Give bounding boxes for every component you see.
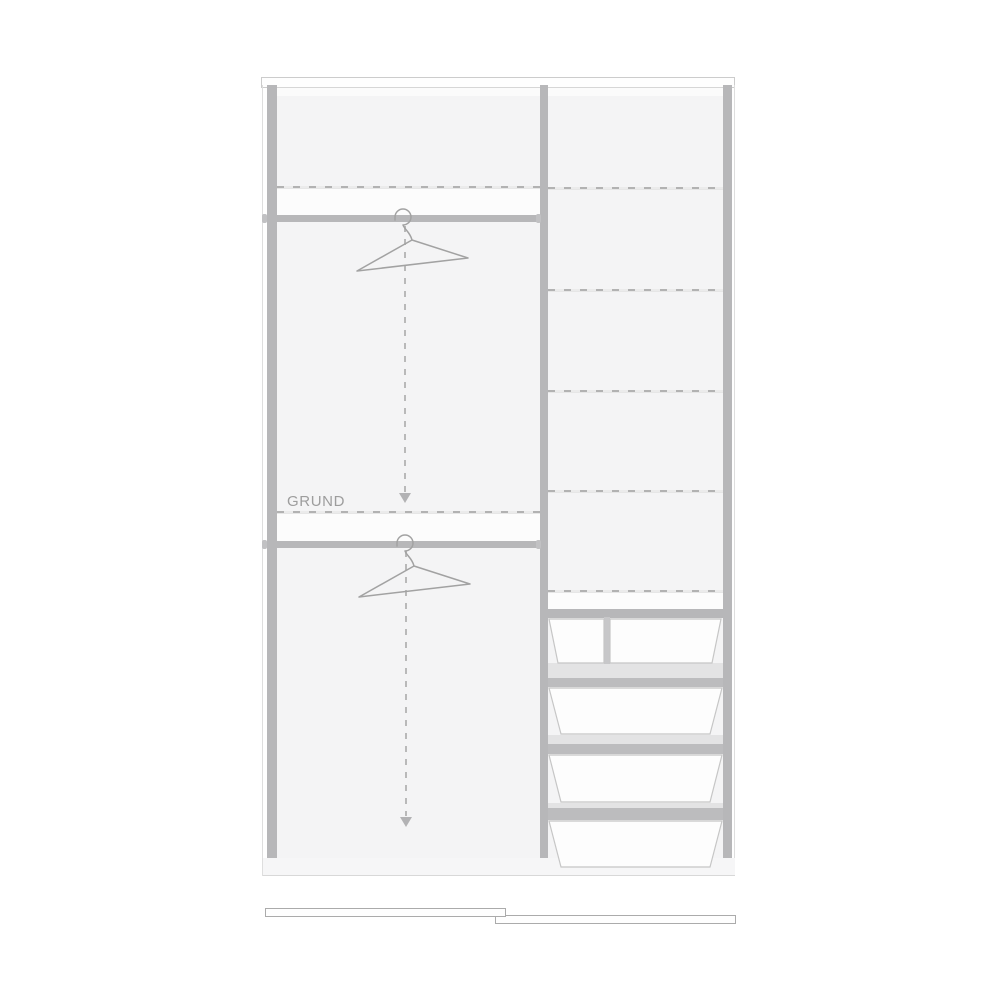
rail-endcap xyxy=(262,540,267,549)
left-side-panel-edge xyxy=(262,85,263,876)
grund-label: GRUND xyxy=(287,494,345,510)
drawer-gap xyxy=(548,663,723,678)
sliding-door-left[interactable] xyxy=(265,908,506,917)
drawer[interactable] xyxy=(548,754,723,803)
drawer-rail xyxy=(548,808,723,820)
wardrobe-planner-diagram: GRUND xyxy=(0,0,1000,1000)
adjustable-shelf-line[interactable] xyxy=(548,187,723,190)
adjustable-shelf-line[interactable] xyxy=(277,186,540,189)
frame-post-left xyxy=(267,85,277,858)
drawer-gap xyxy=(548,735,723,744)
sliding-door-right[interactable] xyxy=(495,915,736,924)
drawer-rail xyxy=(548,678,723,687)
adjustable-shelf-line[interactable] xyxy=(277,511,540,514)
drawer-rail xyxy=(548,744,723,754)
adjustable-shelf-line[interactable] xyxy=(548,490,723,493)
rail-endcap xyxy=(536,540,541,549)
adjustable-shelf-line[interactable] xyxy=(548,590,723,593)
adjustable-shelf-line[interactable] xyxy=(548,289,723,292)
rail-endcap xyxy=(262,214,267,223)
frame-post-middle xyxy=(540,85,548,858)
drawer[interactable] xyxy=(548,687,723,735)
drawer[interactable] xyxy=(548,618,605,664)
adjustable-shelf-line[interactable] xyxy=(548,390,723,393)
rail-endcap xyxy=(536,214,541,223)
right-side-panel-edge xyxy=(734,85,735,876)
fixed-shelf[interactable] xyxy=(548,609,723,618)
shelf-band xyxy=(548,593,723,609)
hanger-icon[interactable] xyxy=(349,528,479,603)
hanger-icon[interactable] xyxy=(347,202,477,277)
frame-post-right xyxy=(723,85,732,858)
drag-down-arrowhead xyxy=(400,817,412,827)
drawer[interactable] xyxy=(609,618,722,664)
drawer[interactable] xyxy=(548,820,723,868)
drag-down-arrowhead xyxy=(399,493,411,503)
